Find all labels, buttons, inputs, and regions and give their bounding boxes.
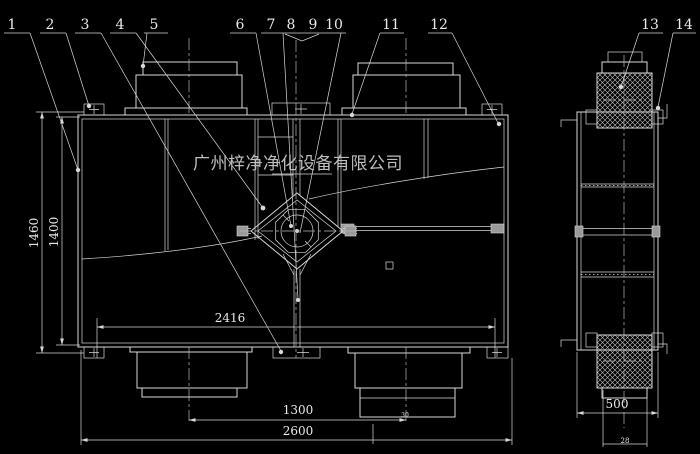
dim-body-height: 1400 — [47, 117, 80, 345]
company-watermark: 广州梓净净化设备有限公司 — [193, 154, 403, 174]
company-watermark-text: 广州梓净净化设备有限公司 — [193, 154, 403, 174]
hepa-filter-bottom — [586, 333, 663, 398]
dim-side-duct-text: 28 — [621, 437, 630, 445]
callout-14: 14 — [675, 17, 693, 33]
callout-11: 11 — [382, 17, 400, 33]
foot-bottom-left — [84, 347, 104, 358]
callout-5: 5 — [150, 17, 159, 33]
side-top-duct — [602, 52, 647, 73]
lifting-lug-top-right — [482, 104, 502, 115]
callout-6: 6 — [236, 17, 245, 33]
dim-inner-width-text: 2416 — [215, 311, 246, 325]
side-dividers — [575, 184, 660, 277]
callout-12: 12 — [430, 17, 448, 33]
hepa-filter-top — [586, 73, 663, 128]
callout-2: 2 — [46, 17, 55, 33]
bottom-duct-left — [130, 347, 252, 397]
side-body — [577, 112, 658, 350]
callout-3: 3 — [81, 17, 90, 33]
callout-underlines — [4, 33, 696, 41]
dim-duct-spacing-text: 1300 — [283, 403, 314, 417]
callout-7: 7 — [267, 17, 276, 33]
callout-10: 10 — [325, 17, 343, 33]
bottom-duct-right — [348, 347, 470, 417]
callouts: 1 2 3 4 5 6 7 8 9 10 11 12 13 14 — [4, 17, 696, 354]
callout-8: 8 — [287, 17, 296, 33]
dim-offset-text: 30 — [401, 412, 409, 419]
dim-side-width-text: 500 — [606, 397, 629, 411]
foot-bottom-right — [487, 347, 508, 358]
access-port-top-center — [272, 103, 330, 115]
callout-1: 1 — [8, 17, 17, 33]
main-view — [78, 38, 508, 421]
callout-13: 13 — [641, 17, 659, 33]
dim-body-height-text: 1400 — [47, 217, 61, 248]
dim-overall-width-text: 2600 — [283, 424, 314, 438]
cad-drawing-canvas: 1460 1400 2416 1300 30 2600 — [0, 0, 700, 454]
inspection-square-marker — [386, 262, 393, 269]
callout-4: 4 — [116, 17, 125, 33]
dim-overall-height-text: 1460 — [27, 218, 41, 249]
drawing-svg: 1460 1400 2416 1300 30 2600 — [0, 0, 700, 454]
callout-9: 9 — [309, 17, 318, 33]
